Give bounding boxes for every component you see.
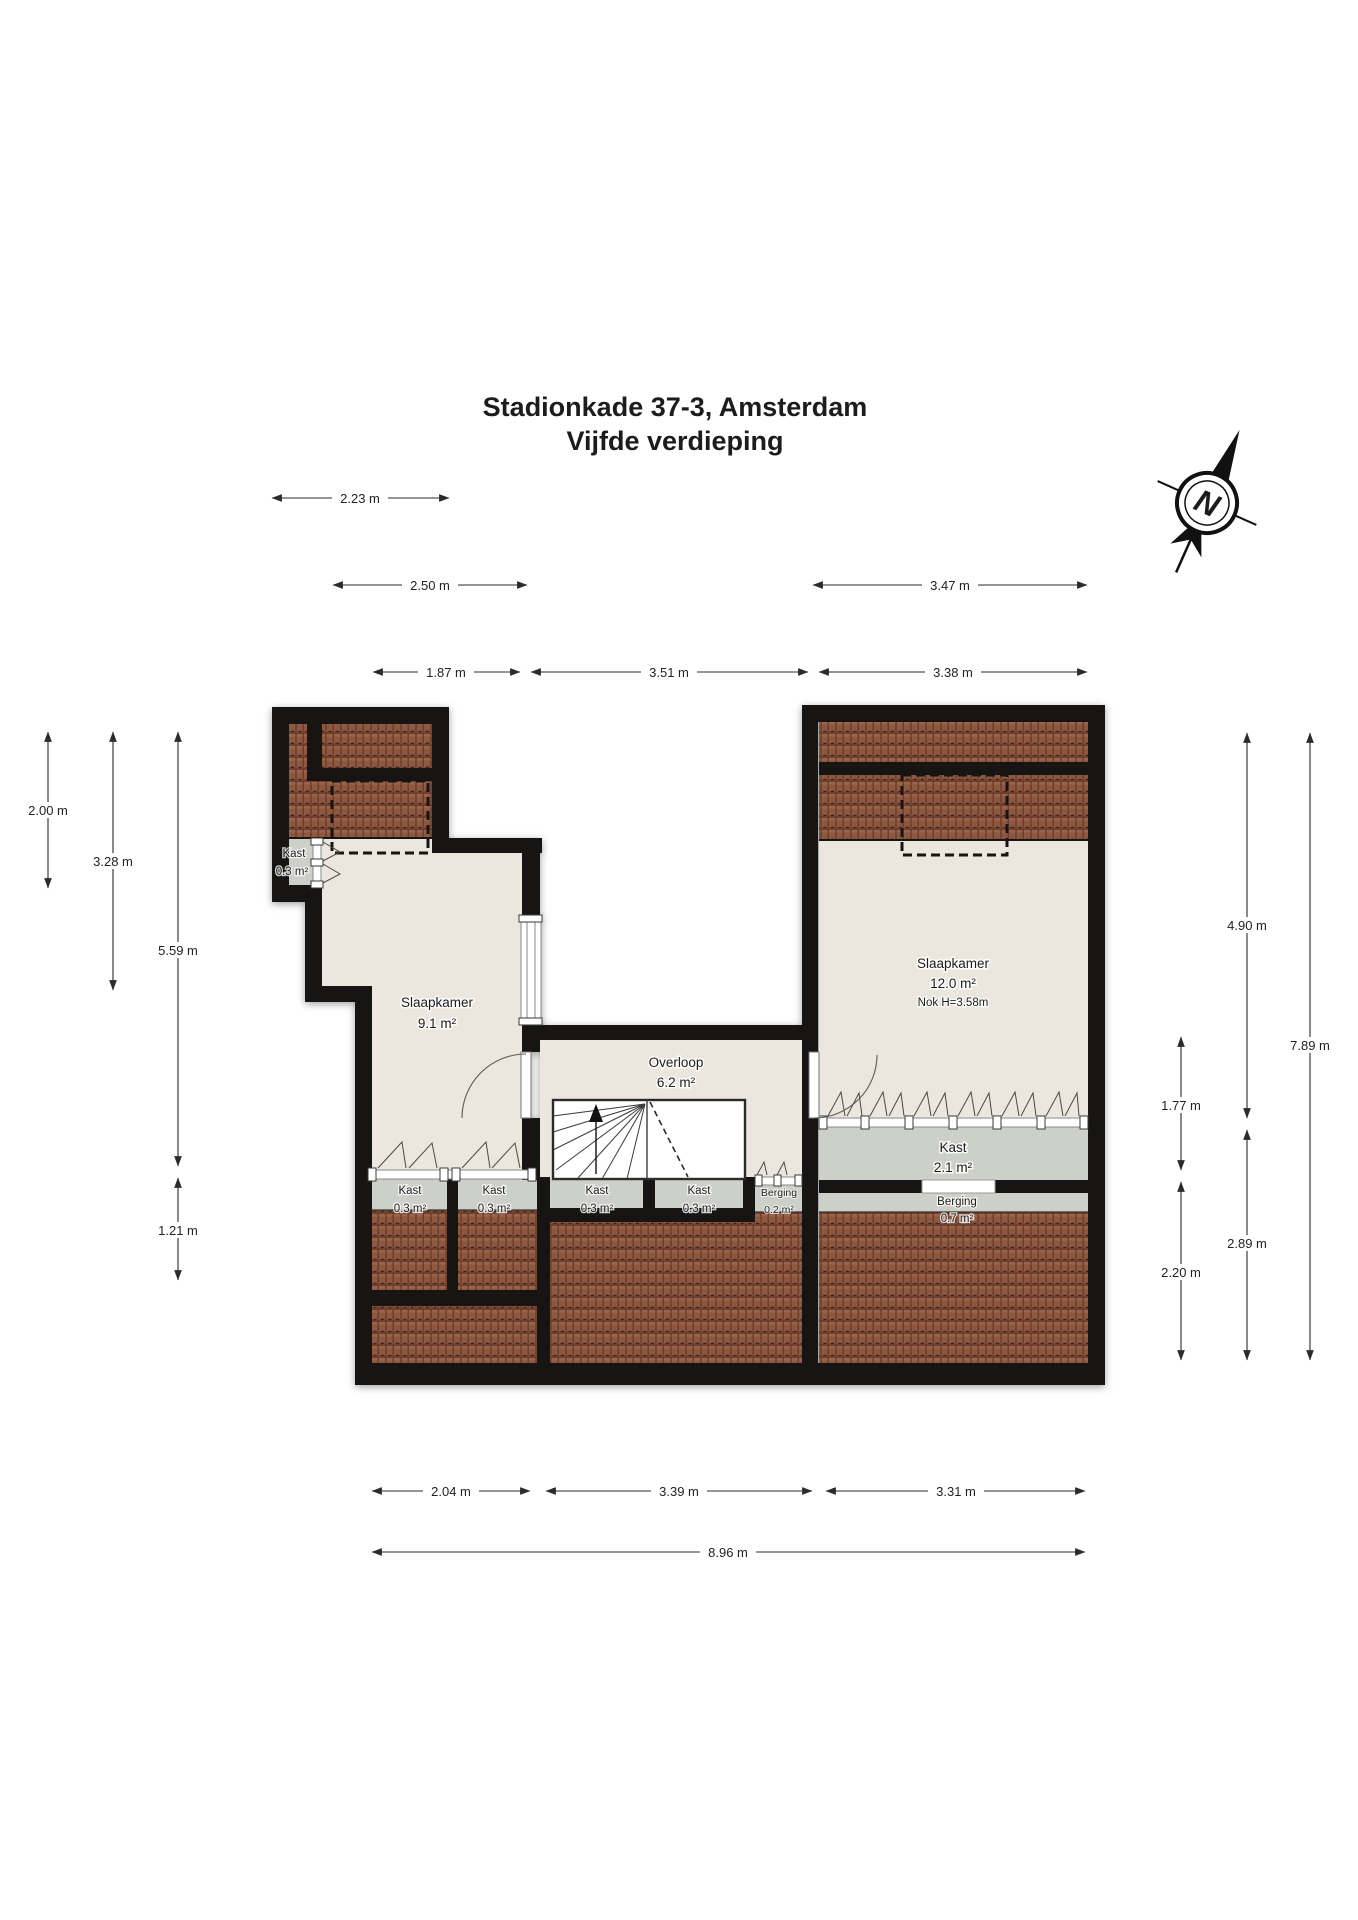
label-slaapkamer-right-name: Slaapkamer	[917, 956, 990, 971]
dim-bottom-1: 2.04 m	[431, 1484, 471, 1499]
label-slaapkamer-right-area: 12.0 m²	[930, 976, 976, 991]
label-kast-s3-name: Kast	[585, 1185, 609, 1197]
label-kast-s1-name: Kast	[398, 1185, 422, 1197]
label-kast-groot-area: 2.1 m²	[934, 1160, 973, 1175]
page-subtitle: Vijfde verdieping	[566, 426, 783, 456]
dim-right-2: 7.89 m	[1290, 1038, 1330, 1053]
label-slaapkamer-left-name: Slaapkamer	[401, 995, 474, 1010]
label-berging-area: 0.7 m²	[941, 1213, 974, 1225]
dim-top-2: 2.50 m	[410, 578, 450, 593]
label-kast-s1-area: 0.3 m²	[394, 1203, 427, 1215]
label-slaapkamer-left-area: 9.1 m²	[418, 1016, 457, 1031]
dim-top-5: 3.51 m	[649, 665, 689, 680]
label-berging-small-area: 0.2 m²	[764, 1204, 794, 1216]
label-kast-s4-area: 0.3 m²	[683, 1203, 716, 1215]
dim-top-4: 1.87 m	[426, 665, 466, 680]
floorplan-page: Stadionkade 37-3, Amsterdam Vijfde verdi…	[0, 0, 1358, 1920]
room-floor-kast-nw	[289, 838, 313, 888]
staircase	[553, 1100, 745, 1179]
page-title: Stadionkade 37-3, Amsterdam	[483, 392, 868, 422]
dim-bottom-4: 8.96 m	[708, 1545, 748, 1560]
label-kast-s3-area: 0.3 m²	[581, 1203, 614, 1215]
dim-top-6: 3.38 m	[933, 665, 973, 680]
label-overloop-area: 6.2 m²	[657, 1075, 696, 1090]
dim-top-3: 3.47 m	[930, 578, 970, 593]
label-berging-name: Berging	[937, 1196, 977, 1208]
dim-left-1: 2.00 m	[28, 803, 68, 818]
dim-right-1: 4.90 m	[1227, 918, 1267, 933]
dim-right-4: 2.89 m	[1227, 1236, 1267, 1251]
label-kast-nw-area: 0.3 m²	[276, 866, 309, 878]
dim-right-3: 1.77 m	[1161, 1098, 1201, 1113]
label-berging-small-name: Berging	[761, 1187, 797, 1199]
floorplan-canvas: Stadionkade 37-3, Amsterdam Vijfde verdi…	[0, 0, 1358, 1920]
label-kast-s4-name: Kast	[687, 1185, 711, 1197]
compass-rose: N	[1127, 408, 1289, 594]
dim-top-1: 2.23 m	[340, 491, 380, 506]
label-kast-groot-name: Kast	[939, 1140, 966, 1155]
label-kast-s2-name: Kast	[482, 1185, 506, 1197]
dim-right-5: 2.20 m	[1161, 1265, 1201, 1280]
floorplan-drawing: Kast 0.3 m² Slaapkamer 9.1 m² Overloop 6…	[272, 705, 1105, 1385]
label-overloop-name: Overloop	[649, 1055, 704, 1070]
label-slaapkamer-right-note: Nok H=3.58m	[918, 997, 989, 1009]
dim-left-3: 5.59 m	[158, 943, 198, 958]
dim-bottom-3: 3.31 m	[936, 1484, 976, 1499]
label-kast-nw-name: Kast	[282, 848, 306, 860]
dim-left-4: 1.21 m	[158, 1223, 198, 1238]
window-slaapkamer-left	[519, 915, 542, 1025]
berging-opening	[922, 1180, 995, 1193]
label-kast-s2-area: 0.3 m²	[478, 1203, 511, 1215]
dim-left-2: 3.28 m	[93, 854, 133, 869]
dim-bottom-2: 3.39 m	[659, 1484, 699, 1499]
